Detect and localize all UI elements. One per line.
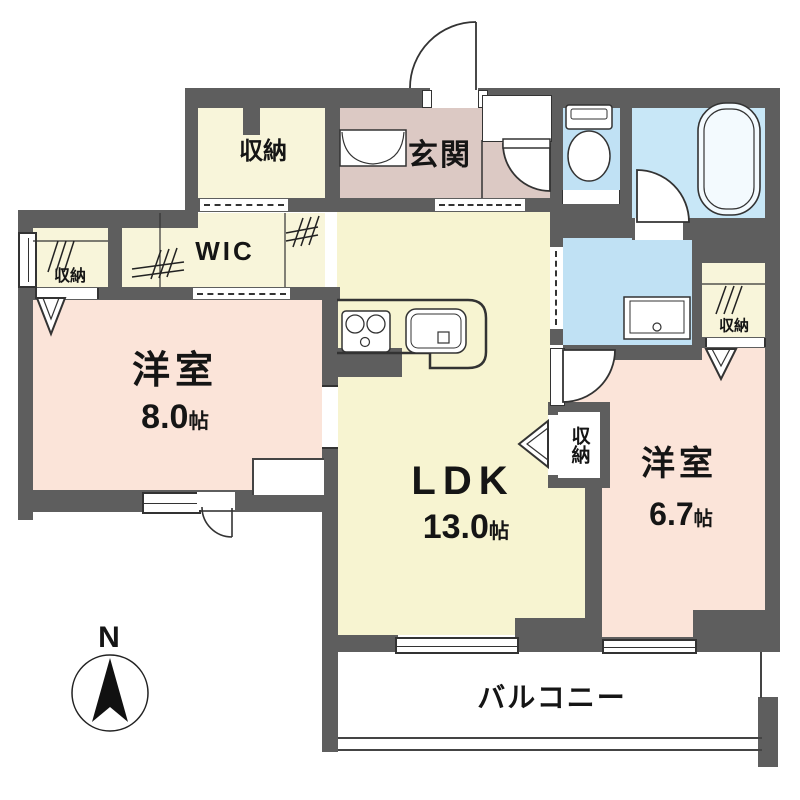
- western8-door-arc-icon: [202, 507, 232, 537]
- bath-door-arc-icon: [637, 170, 689, 222]
- symbol-layer: [0, 0, 800, 800]
- room-label-closet-top: 収納: [239, 140, 287, 164]
- stove-icon: [342, 311, 390, 352]
- toilet-icon: [566, 105, 612, 181]
- hanger-pipe-icon: [286, 216, 319, 247]
- compass-icon: [72, 655, 148, 731]
- bathtub-icon: [698, 103, 760, 215]
- room-size-ldk: 13.0帖: [423, 510, 510, 544]
- room-label-ldk: LDK: [411, 461, 514, 501]
- folding-door-icon: [37, 298, 65, 334]
- western67-door-arc-icon: [563, 350, 615, 402]
- room-label-balcony: バルコニー: [477, 684, 626, 712]
- shoe-cabinet-icon: [340, 130, 406, 166]
- folding-door-icon: [706, 349, 736, 379]
- room-size-western8: 8.0帖: [141, 400, 209, 434]
- vanity-icon: [624, 297, 690, 339]
- room-label-genkan: 玄関: [408, 141, 472, 171]
- room-label-closet-left: 収納: [54, 269, 86, 285]
- hanger-pipe-icon: [716, 286, 742, 314]
- floor-plan: 収納 WIC 収納 玄関 洋室 8.0帖 LDK 13.0帖 収納 洋室 6.7…: [0, 0, 800, 800]
- room-size-western67: 6.7帖: [649, 498, 713, 530]
- room-label-closet-right: 収納: [719, 319, 749, 334]
- room-label-western67: 洋室: [641, 447, 717, 481]
- kitchen-sink-icon: [406, 309, 466, 353]
- hall-door-arc-icon: [503, 139, 550, 191]
- room-label-western8: 洋室: [132, 352, 218, 390]
- entry-door-arc-icon: [410, 22, 476, 90]
- closet-mid-door-icon: [519, 421, 548, 467]
- room-label-wic: WIC: [195, 238, 255, 264]
- compass-north-label: N: [98, 623, 120, 653]
- hanger-pipe-icon: [132, 248, 184, 279]
- room-label-closet-mid: 収納: [570, 426, 589, 464]
